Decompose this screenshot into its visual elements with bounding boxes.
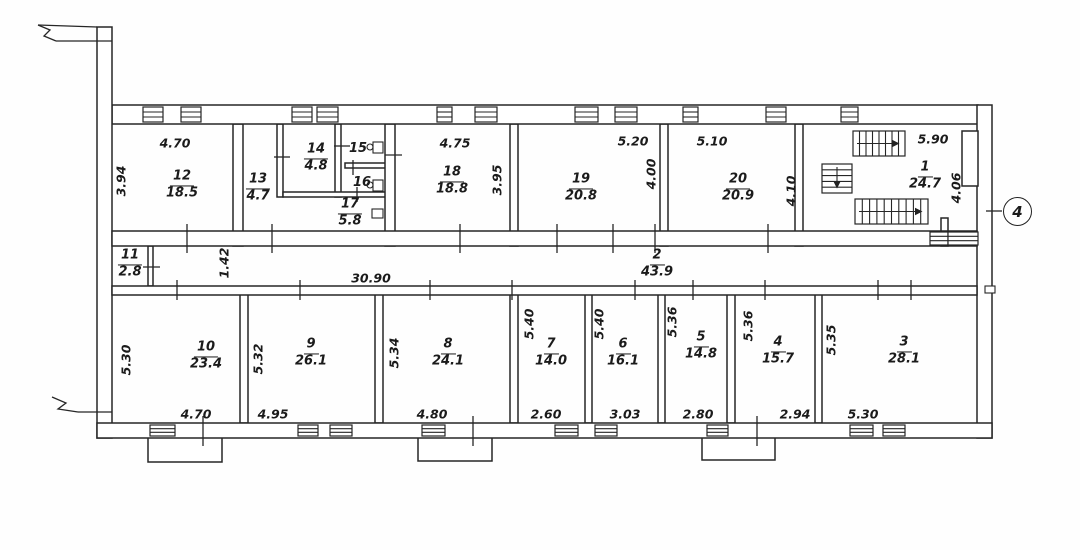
wall — [375, 294, 383, 423]
wall — [510, 294, 518, 423]
break-line — [52, 397, 78, 412]
section-marker: 4 — [1003, 197, 1032, 226]
wall — [277, 124, 283, 197]
wall — [510, 124, 518, 246]
wall — [585, 294, 592, 423]
plumbing-fixture-bowl — [367, 144, 373, 150]
window — [555, 425, 578, 436]
window — [707, 425, 728, 436]
window — [292, 107, 312, 122]
wall — [345, 163, 387, 168]
wall — [727, 294, 735, 423]
wall — [112, 231, 977, 246]
window — [575, 107, 598, 122]
wall — [335, 124, 341, 197]
wall — [660, 124, 668, 246]
window — [422, 425, 445, 436]
window — [143, 107, 163, 122]
break-line — [38, 25, 56, 41]
wall — [795, 124, 803, 246]
wall — [658, 294, 665, 423]
floor-plan: 1218.5134.7144.81516175.81818.81920.8202… — [0, 0, 1080, 550]
wall — [240, 294, 248, 423]
wall — [112, 286, 977, 295]
plumbing-fixture — [373, 142, 383, 153]
window — [475, 107, 497, 122]
window — [948, 232, 978, 245]
window — [930, 232, 948, 245]
window — [317, 107, 338, 122]
window — [298, 425, 318, 436]
window — [437, 107, 452, 122]
wall — [815, 294, 822, 423]
window — [766, 107, 786, 122]
wall — [962, 131, 978, 186]
plumbing-fixture — [372, 209, 383, 218]
window — [841, 107, 858, 122]
porch — [418, 437, 492, 461]
porch — [702, 437, 775, 460]
window — [683, 107, 698, 122]
wall — [977, 105, 992, 438]
window — [181, 107, 201, 122]
plumbing-fixture — [373, 180, 383, 191]
window — [150, 425, 175, 436]
window — [330, 425, 352, 436]
plan-linework — [0, 0, 1080, 550]
plumbing-fixture-bowl — [367, 182, 373, 188]
window — [595, 425, 617, 436]
wall-detail — [985, 286, 995, 293]
section-marker-label: 4 — [1012, 203, 1022, 221]
window — [850, 425, 873, 436]
wall — [283, 192, 387, 197]
wall — [148, 246, 153, 286]
wall — [385, 124, 395, 246]
window — [615, 107, 637, 122]
window — [883, 425, 905, 436]
porch — [148, 437, 222, 462]
break-line — [38, 25, 97, 27]
wall — [233, 124, 243, 246]
wall — [97, 27, 112, 438]
